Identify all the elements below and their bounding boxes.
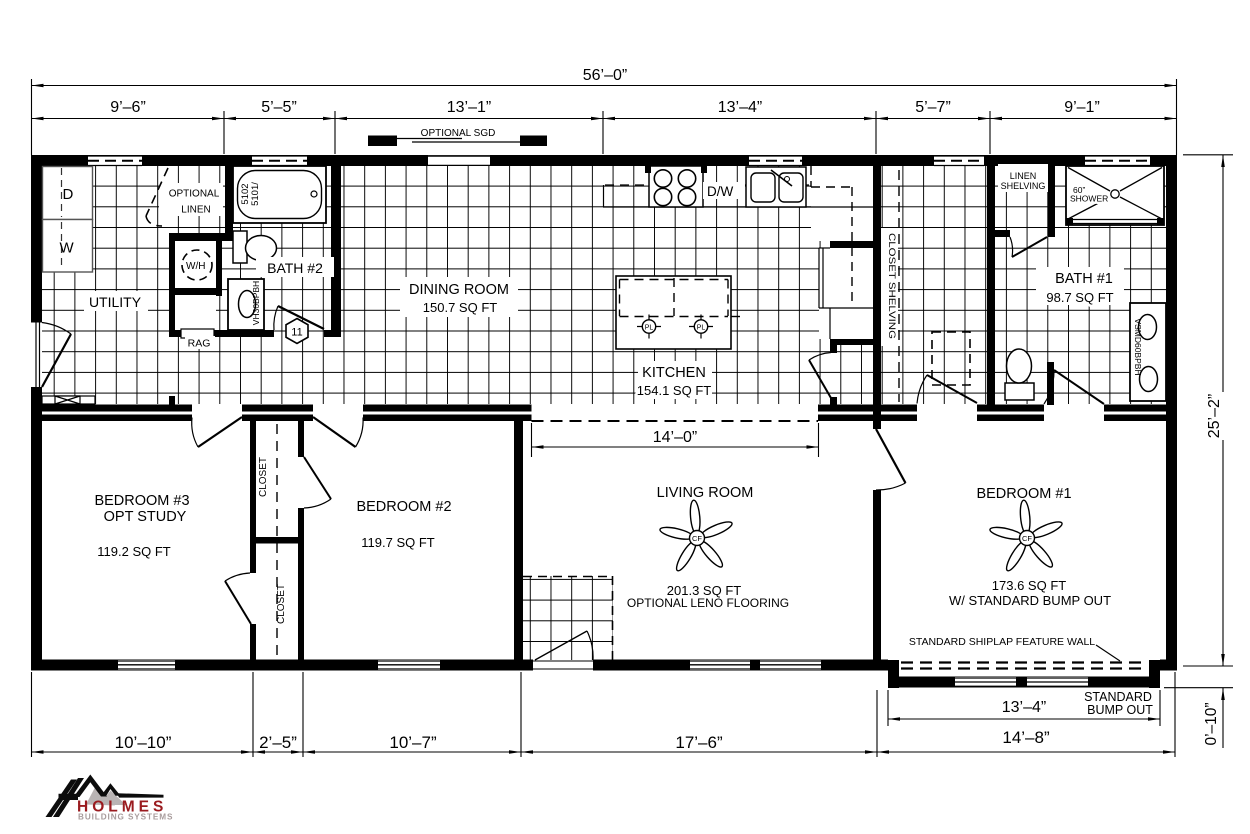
svg-text:CF: CF: [1022, 534, 1032, 543]
svg-text:STANDARD: STANDARD: [1084, 690, 1152, 704]
svg-text:CLOSET: CLOSET: [258, 457, 269, 497]
svg-text:10’–7”: 10’–7”: [389, 733, 437, 752]
svg-text:BEDROOM #1: BEDROOM #1: [976, 486, 1071, 502]
svg-text:11: 11: [291, 327, 302, 339]
svg-text:13’–1”: 13’–1”: [447, 99, 491, 116]
svg-text:BUILDING SYSTEMS: BUILDING SYSTEMS: [78, 813, 173, 822]
svg-text:9’–1”: 9’–1”: [1064, 99, 1100, 116]
svg-text:CF: CF: [692, 534, 702, 543]
svg-text:5’–5”: 5’–5”: [261, 99, 297, 116]
svg-text:RAG: RAG: [188, 338, 211, 350]
svg-text:DINING ROOM: DINING ROOM: [409, 282, 509, 298]
svg-text:W/H: W/H: [186, 261, 205, 272]
svg-text:56’–0”: 56’–0”: [583, 67, 627, 84]
svg-text:LINEN: LINEN: [1010, 171, 1037, 181]
svg-text:KITCHEN: KITCHEN: [642, 365, 706, 381]
svg-text:OPTIONAL SGD: OPTIONAL SGD: [421, 128, 496, 139]
svg-text:D/W: D/W: [707, 184, 734, 199]
svg-text:UTILITY: UTILITY: [89, 294, 142, 310]
svg-text:OPTIONAL: OPTIONAL: [169, 189, 220, 200]
svg-text:VH30BPBH: VH30BPBH: [251, 281, 261, 325]
svg-text:25’–2”: 25’–2”: [1206, 394, 1223, 438]
svg-text:173.6 SQ FT: 173.6 SQ FT: [992, 578, 1066, 593]
svg-text:14’–0”: 14’–0”: [653, 429, 697, 446]
svg-text:OPT STUDY: OPT STUDY: [104, 509, 187, 525]
svg-text:0’–10”: 0’–10”: [1203, 702, 1220, 745]
svg-text:154.1 SQ FT: 154.1 SQ FT: [637, 383, 711, 398]
svg-text:D: D: [63, 186, 74, 203]
svg-text:119.7 SQ FT: 119.7 SQ FT: [361, 535, 435, 550]
svg-text:BATH #2: BATH #2: [267, 260, 323, 276]
svg-text:W: W: [60, 240, 75, 257]
svg-text:LIVING ROOM: LIVING ROOM: [657, 485, 754, 501]
svg-text:PL: PL: [645, 325, 654, 332]
svg-text:98.7 SQ FT: 98.7 SQ FT: [1046, 290, 1113, 305]
svg-text:VSMD60BPBH: VSMD60BPBH: [1133, 318, 1143, 375]
svg-text:BUMP OUT: BUMP OUT: [1087, 703, 1153, 717]
svg-text:13’–4”: 13’–4”: [718, 99, 762, 116]
svg-text:13’–4”: 13’–4”: [1002, 699, 1046, 716]
svg-text:LINEN: LINEN: [181, 205, 210, 216]
svg-text:17’–6”: 17’–6”: [675, 733, 723, 752]
svg-text:STANDARD SHIPLAP FEATURE WA: STANDARD SHIPLAP FEATURE WALL: [909, 636, 1095, 648]
svg-text:BEDROOM #2: BEDROOM #2: [356, 499, 451, 515]
svg-text:119.2 SQ FT: 119.2 SQ FT: [97, 544, 171, 559]
svg-text:BATH #1: BATH #1: [1055, 271, 1113, 287]
svg-text:14’–8”: 14’–8”: [1002, 728, 1050, 747]
svg-text:10’–10”: 10’–10”: [115, 733, 172, 752]
svg-text:5’–7”: 5’–7”: [915, 99, 951, 116]
svg-text:CLOSET: CLOSET: [276, 584, 287, 624]
svg-text:W/ STANDARD BUMP OUT: W/ STANDARD BUMP OUT: [949, 593, 1111, 608]
svg-text:150.7 SQ FT: 150.7 SQ FT: [423, 300, 497, 315]
svg-text:SHELVING: SHELVING: [1001, 181, 1046, 191]
svg-text:2’–5”: 2’–5”: [259, 733, 297, 752]
svg-text:CLOSET SHELVING: CLOSET SHELVING: [887, 233, 897, 339]
svg-text:PL: PL: [697, 325, 706, 332]
svg-text:OPTIONAL LENO FLOORING: OPTIONAL LENO FLOORING: [627, 596, 789, 610]
svg-text:9’–6”: 9’–6”: [110, 99, 146, 116]
svg-text:5101/: 5101/: [250, 182, 261, 206]
svg-text:BEDROOM #3: BEDROOM #3: [94, 493, 189, 509]
svg-text:SHOWER: SHOWER: [1070, 194, 1108, 204]
